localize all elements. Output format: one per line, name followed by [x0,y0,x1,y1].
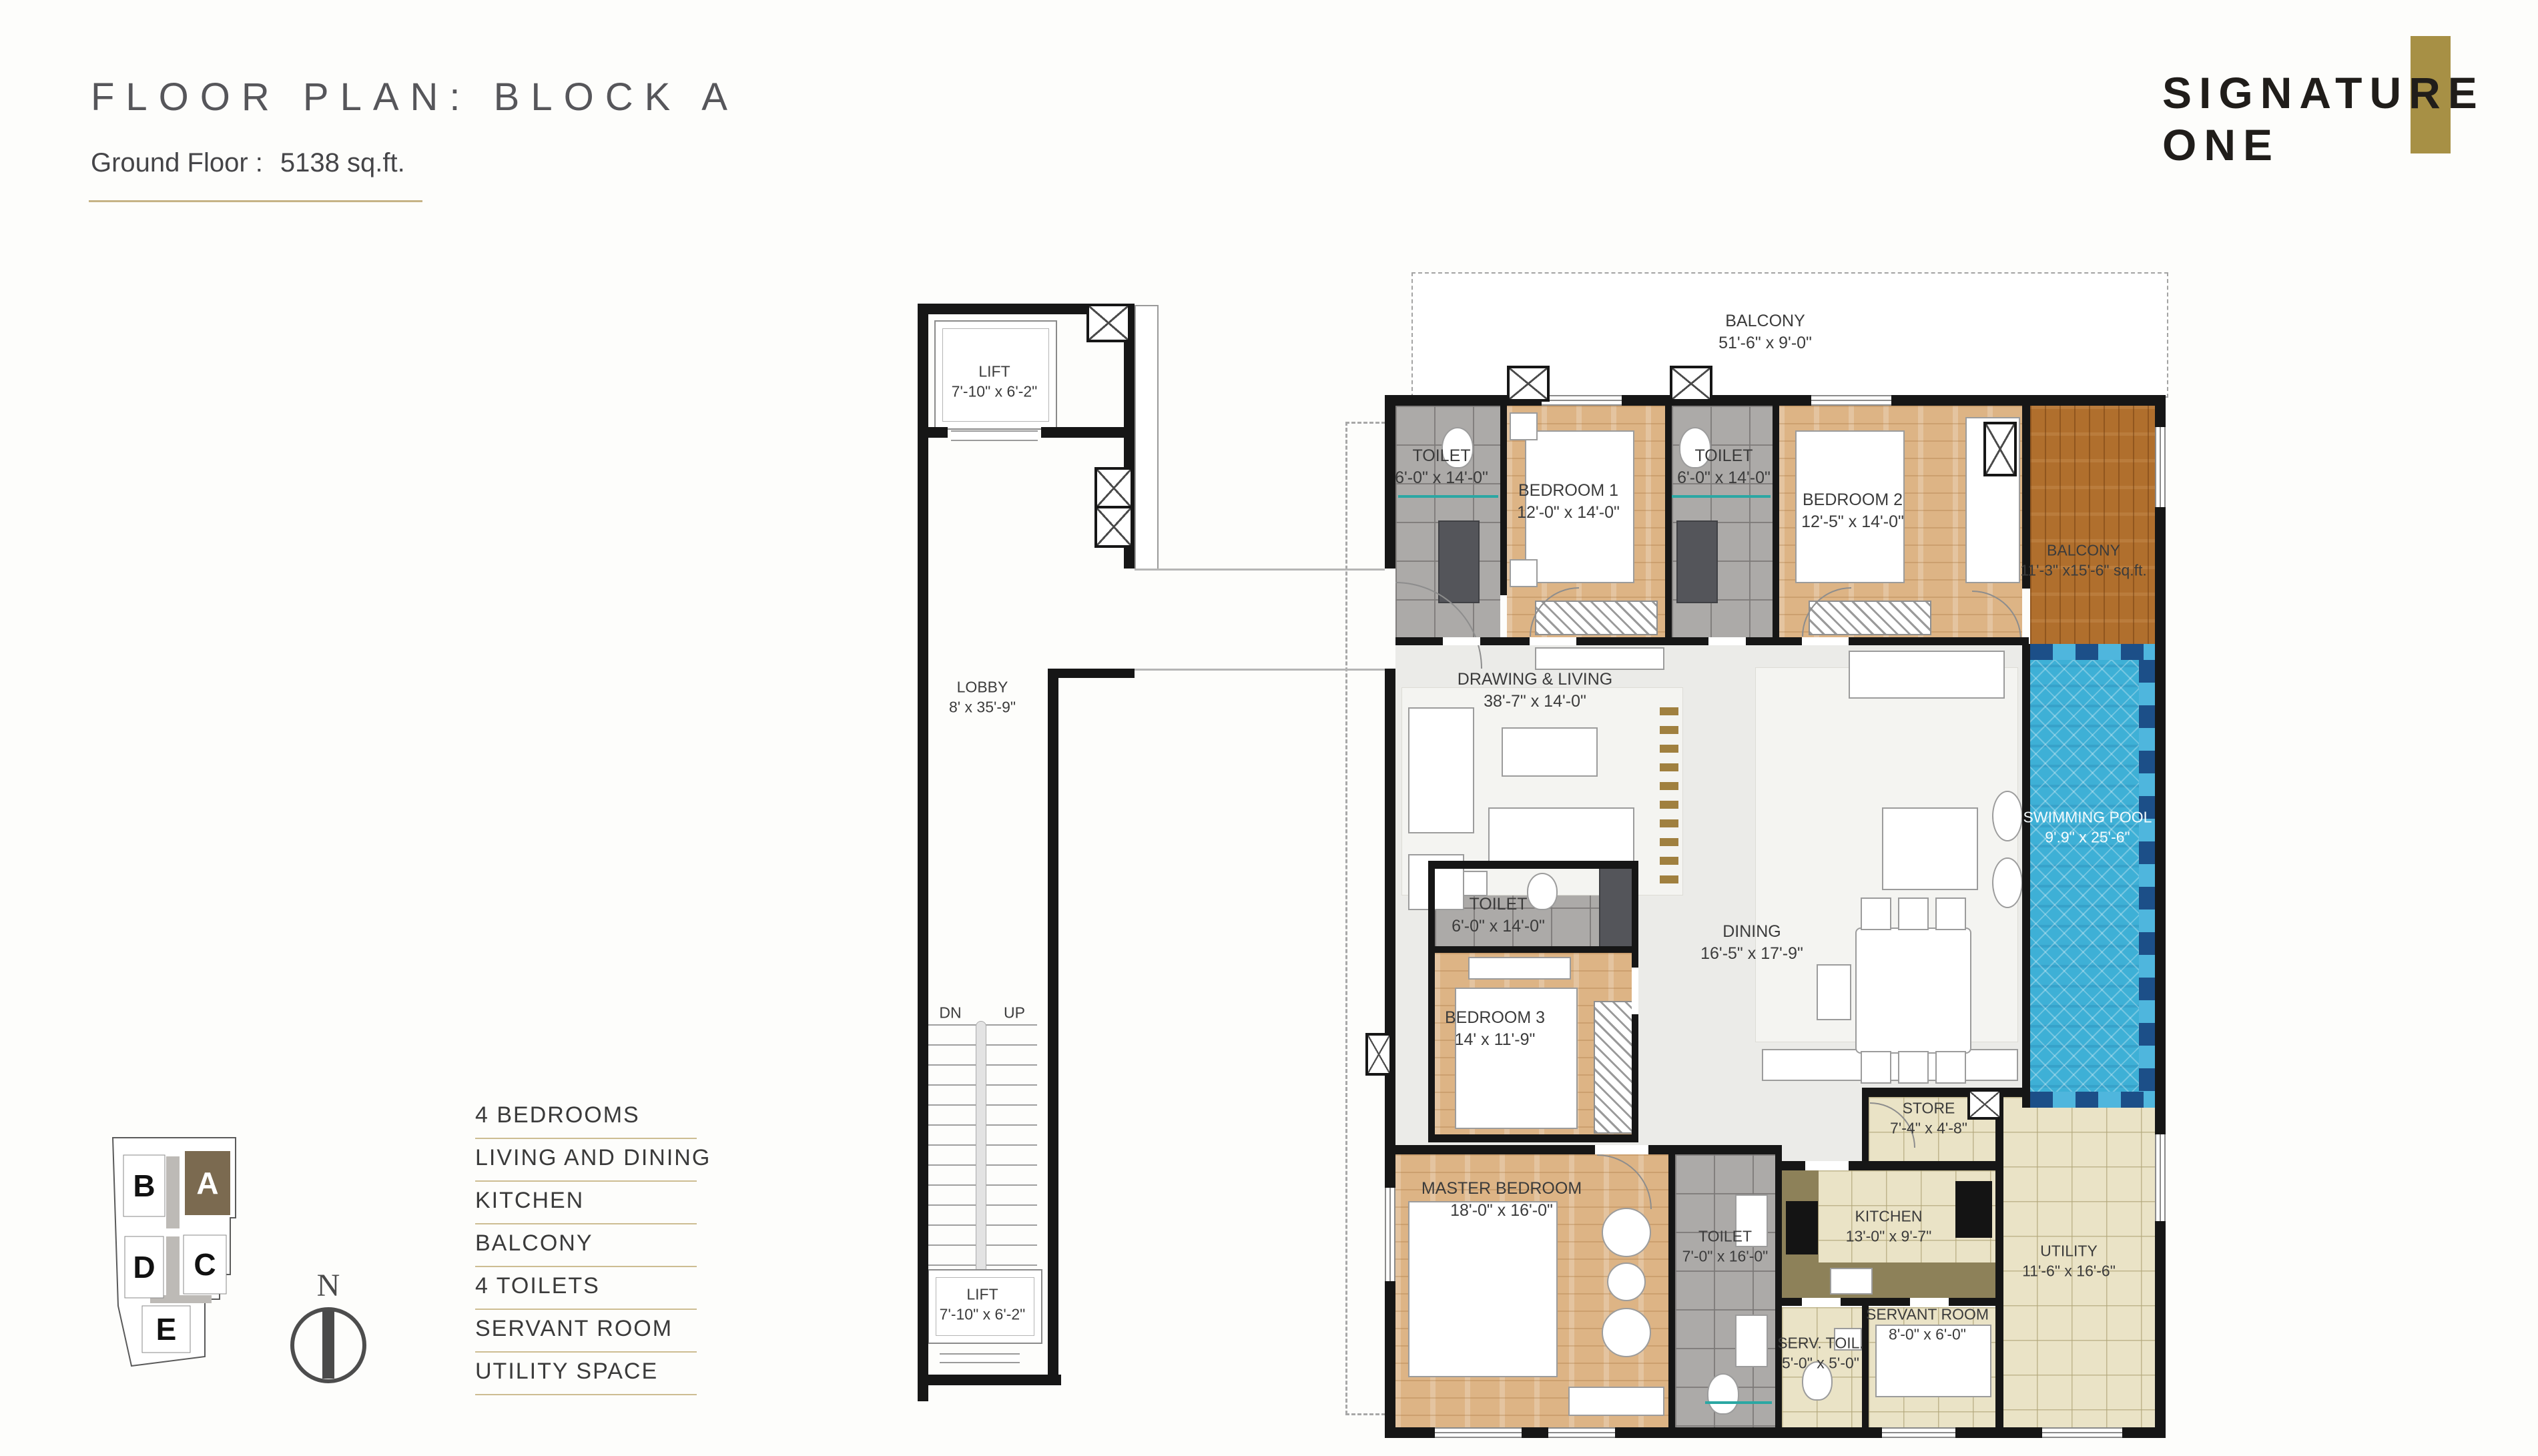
wall [1428,1134,1638,1142]
window [1542,395,1622,406]
subtitle-underline [89,200,422,202]
pool-tile-edge [2139,660,2155,1092]
window [2042,1427,2122,1438]
wall [1385,395,1395,569]
door-gap [1802,1298,1841,1306]
room-label-bedroom-1: BEDROOM 112'-0" x 14'-0" [1517,480,1620,524]
lift-door [940,1353,1020,1363]
room-label-balcony-right: BALCONY11'-3" x15'-6" sq.ft. [2020,540,2147,581]
floor-subtitle: Ground Floor :5138 sq.ft. [91,148,405,178]
chair [1898,897,1929,930]
room-label-utility: UTILITY11'-6" x 16'-6" [2022,1241,2116,1282]
vanity [1599,866,1633,948]
window [1385,1188,1395,1281]
room-label-servant-room: SERVANT ROOM8'-0" x 6'-0" [1866,1305,1989,1345]
legend-underline [475,1394,697,1395]
wall [1385,1145,1782,1154]
door-gap [1530,637,1576,645]
shaft-x-icon [1365,1033,1392,1076]
chair [1935,897,1966,930]
room-label-dining: DINING16'-5" x 17'-9" [1700,921,1803,965]
wardrobe [1594,1001,1633,1134]
tv-unit [1849,651,2005,699]
wall [1048,669,1135,678]
legend-underline [475,1138,697,1139]
room-label-swimming-pool: SWIMMING POOL9'.9" x 25'-6" [2023,807,2152,848]
wall [1773,395,1779,637]
legend-list: 4 BEDROOMS LIVING AND DINING KITCHEN BAL… [475,1102,755,1401]
key-plan-connector [166,1236,180,1297]
shaft-x-icon [1094,467,1133,509]
wall [2155,395,2166,1438]
coffee-table [1502,727,1598,777]
window [1548,1427,1615,1438]
room-label-toilet-1: TOILET6'-0" x 14'-0" [1395,445,1488,489]
armchair [1992,857,2023,908]
chair [1898,1051,1929,1084]
property-dash-line [1345,422,1347,1415]
property-dash-line [1345,1413,1385,1415]
wall [1041,427,1124,438]
stairs-dn-label: DN [939,1004,961,1022]
window [2155,427,2166,507]
wall [1428,861,1435,1142]
vanity [1438,520,1480,603]
legend-item: 4 TOILETS [475,1273,755,1316]
door-gap [1802,637,1849,645]
floor-label: Ground Floor : [91,148,263,177]
key-plan: B A D C E [103,1131,247,1375]
floor-area: 5138 sq.ft. [280,148,405,177]
chair [1861,1051,1891,1084]
legend-item-label: BALCONY [475,1230,755,1256]
sink [1830,1268,1873,1295]
shaft-x-icon [1507,366,1550,402]
wall [1862,1088,1869,1162]
key-plan-label-d: D [133,1250,155,1285]
wall [918,304,928,1401]
window [1435,1427,1522,1438]
chair [1935,1051,1966,1084]
north-needle [322,1311,334,1379]
wall [1665,395,1672,637]
armchair [1602,1208,1651,1257]
room-label-master-bedroom: MASTER BEDROOM18'-0" x 16'-0" [1421,1178,1582,1222]
shaft-column [1135,305,1159,570]
key-plan-label-b: B [133,1168,155,1203]
legend-item-label: LIVING AND DINING [475,1145,755,1171]
shower-line [1705,1401,1772,1404]
armchair [1992,791,2023,841]
pool-tile-edge [2030,644,2155,660]
legend-item-label: 4 BEDROOMS [475,1102,755,1128]
nightstand [1510,559,1538,587]
wall [1500,395,1507,595]
room-label-kitchen: KITCHEN13'-0" x 9'-7" [1846,1206,1932,1247]
room-label-servant-toilet: SERV. TOIL.5'-0" x 5'-0" [1777,1333,1864,1374]
north-label: N [317,1268,340,1303]
sofa [1488,807,1634,869]
shaft-x-icon [1967,1089,2002,1120]
room-label-lift-top: LIFT 7'-10" x 6'-2" [952,362,1038,402]
brand-logo: SIGNATURE ONE [2162,67,2509,200]
sofa [1408,707,1474,833]
room-label-toilet-3: TOILET6'-0" x 14'-0" [1452,893,1545,938]
room-swimming-pool [2030,644,2155,1108]
door-gap [1632,968,1638,1014]
wall [1428,946,1638,953]
key-plan-label-a: A [196,1166,218,1200]
slat-partition [1660,707,1678,894]
door-gap [1443,637,1480,645]
room-label-lift-bottom: LIFT 7'-10" x 6'-2" [940,1285,1026,1325]
wc [1707,1373,1739,1415]
wall [1428,861,1638,869]
legend-item-label: KITCHEN [475,1188,755,1214]
room-label-bedroom-3: BEDROOM 314' x 11'-9" [1445,1007,1545,1051]
legend-item: SERVANT ROOM [475,1316,755,1359]
room-balcony-right [2030,406,2155,644]
window [1882,1427,1955,1438]
kitchen-counter [1782,1262,1995,1298]
lift-door [951,430,1038,441]
page-title: FLOOR PLAN: BLOCK A [91,75,739,119]
north-arrow: N [280,1268,377,1388]
pool-tile-edge [2030,1092,2155,1108]
vanity [1676,520,1718,603]
sink [1735,1315,1768,1367]
legend-item: LIVING AND DINING [475,1145,755,1188]
fridge [1955,1181,1992,1238]
legend-item-label: SERVANT ROOM [475,1316,755,1342]
legend-item-label: UTILITY SPACE [475,1359,755,1385]
shaft-x-icon [1094,506,1133,548]
chair [1861,897,1891,930]
tv-console [1535,647,1664,670]
shower-line [1672,495,1771,498]
legend-underline [475,1351,697,1353]
stair-divider [976,1021,986,1305]
room-label-lobby: LOBBY 8' x 35'-9" [949,677,1016,718]
door-gap [1805,1161,1849,1170]
corridor-line [1135,569,1385,571]
ottoman [1882,807,1978,890]
legend-item-label: 4 TOILETS [475,1273,755,1299]
window [2155,1134,2166,1221]
room-label-store: STORE7'-4" x 4'-8" [1890,1098,1967,1139]
room-label-balcony-top: BALCONY 51'-6" x 9'-0" [1718,310,1812,354]
shaft-x-icon [1086,304,1131,342]
wall [918,1375,1061,1385]
wall [1775,1145,1782,1427]
room-label-bedroom-2: BEDROOM 212'-5" x 14'-0" [1801,489,1904,533]
stair-flight [928,1024,976,1303]
legend-item: BALCONY [475,1230,755,1273]
door-gap [1708,637,1746,645]
stair-flight [986,1024,1037,1303]
chair [1817,964,1851,1020]
legend-item: 4 BEDROOMS [475,1102,755,1145]
room-label-master-toilet: TOILET7'-0" x 16'-0" [1682,1226,1769,1267]
legend-underline [475,1266,697,1267]
wall [1668,1145,1675,1427]
room-label-toilet-2: TOILET6'-0" x 14'-0" [1677,445,1771,489]
armchair [1602,1308,1651,1357]
legend-underline [475,1223,697,1224]
dining-table [1855,928,1971,1054]
window [1811,395,1891,406]
property-dash-line [1345,422,1385,424]
key-plan-label-c: C [194,1247,216,1282]
shaft-x-icon [1670,366,1712,402]
side-table [1607,1262,1646,1301]
wall [2022,644,2030,1108]
legend-underline [475,1180,697,1182]
legend-item: KITCHEN [475,1188,755,1230]
bench [1568,1387,1664,1416]
door-gap [1595,1145,1648,1154]
logo-line1: SIGNATURE [2162,67,2509,119]
room-label-drawing-living: DRAWING & LIVING38'-7" x 14'-0" [1458,669,1612,713]
legend-item: UTILITY SPACE [475,1359,755,1401]
bed [1408,1201,1558,1377]
wall [1048,669,1058,1385]
key-plan-connector [166,1156,180,1228]
key-plan-label-e: E [156,1312,177,1347]
logo-line2: ONE [2162,119,2509,171]
dresser [1468,957,1571,980]
stove [1786,1201,1818,1254]
wall [1995,1088,2003,1427]
nightstand [1510,412,1538,440]
wall [918,427,948,438]
shower-line [1398,495,1498,498]
shaft-x-icon [1983,422,2017,476]
legend-underline [475,1309,697,1310]
stairs-up-label: UP [1004,1004,1025,1022]
